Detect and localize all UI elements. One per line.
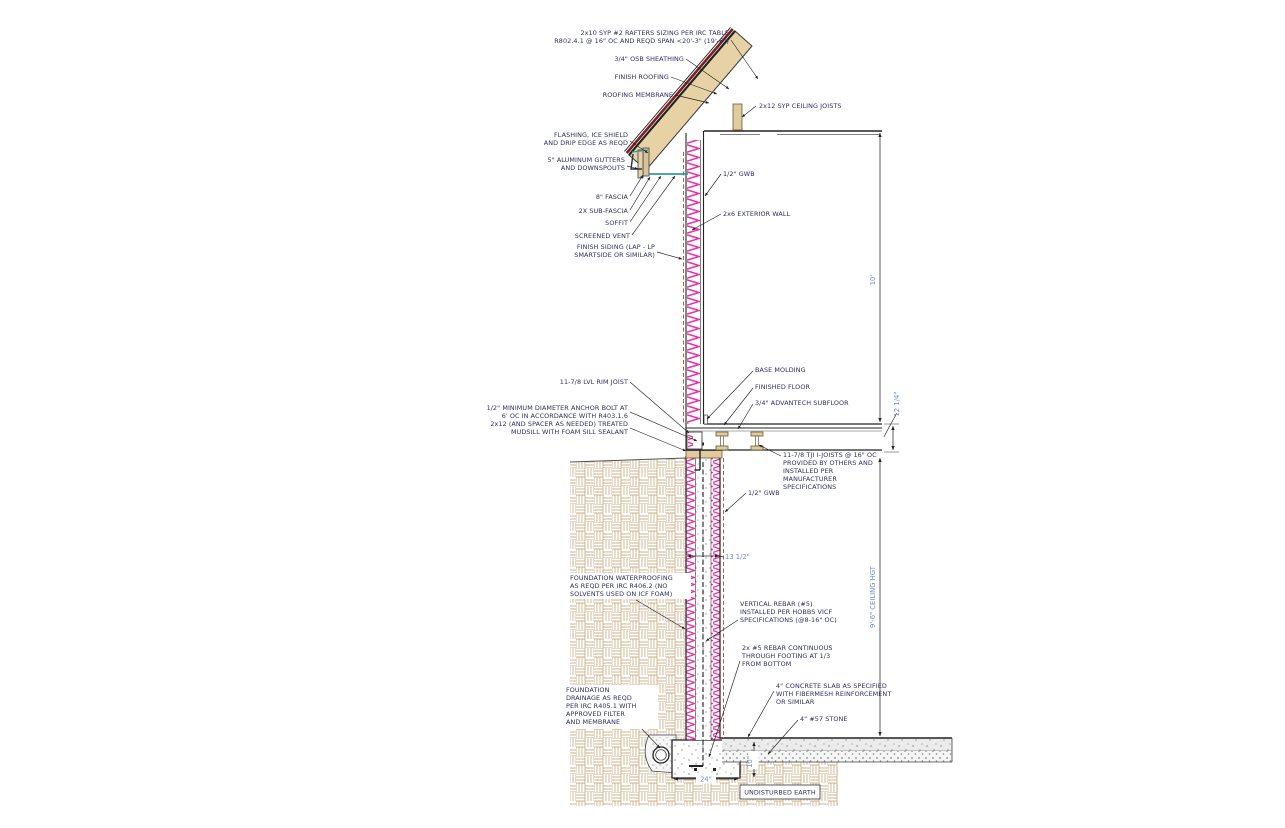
drain-pipe — [653, 747, 669, 763]
tji-joist — [751, 432, 763, 450]
note-membrane: ROOFING MEMBRANE — [603, 91, 673, 99]
note-ceiling-joists: 2x12 SYP CEILING JOISTS — [759, 102, 842, 110]
footing-rebar-bar — [713, 768, 716, 771]
dim-icf-width: 13 1/2" — [725, 553, 750, 561]
icf-foundation-wall — [686, 456, 724, 740]
exterior-wall — [684, 131, 704, 424]
base-molding — [704, 415, 708, 424]
concrete-slab — [720, 738, 952, 751]
note-vertical-rebar: VERTICAL REBAR (#5)INSTALLED PER HOBBS V… — [740, 600, 837, 624]
note-footing-rebar: 2x #5 REBAR CONTINUOUSTHROUGH FOOTING AT… — [741, 644, 833, 668]
dim-ceiling-height: 9'-6" CEILING HGT — [869, 565, 877, 628]
note-gwb-upper: 1/2" GWB — [723, 170, 755, 178]
note-base-molding: BASE MOLDING — [755, 366, 806, 374]
note-waterproofing: FOUNDATION WATERPROOFINGAS REQD PER IRC … — [570, 574, 673, 598]
note-soffit: SOFFIT — [605, 219, 628, 227]
note-sheathing: 3/4" OSB SHEATHING — [614, 55, 684, 63]
footing-rebar-bar — [694, 768, 697, 771]
note-vent: SCREENED VENT — [575, 232, 630, 240]
note-rafters: 2x10 SYP #2 RAFTERS SIZING PER IRC TABLE… — [554, 29, 729, 45]
dim-floor-depth: 12 1/4" — [893, 392, 901, 417]
dim-wall-height: 10' — [869, 275, 877, 286]
note-earth: UNDISTURBED EARTH — [744, 789, 816, 797]
note-fascia: 8" FASCIA — [596, 193, 629, 201]
note-rim-joist: 11-7/8 LVL RIM JOIST — [560, 378, 628, 386]
floor-assembly — [686, 415, 882, 450]
note-stone: 4" #57 STONE — [800, 715, 848, 723]
sub-fascia — [643, 148, 649, 176]
note-slab: 4" CONCRETE SLAB AS SPECIFIEDWITH FIBERM… — [776, 682, 891, 706]
tji-joist — [716, 432, 728, 450]
dim-footing-width: 24" — [700, 776, 712, 784]
note-finished-floor: FINISHED FLOOR — [755, 383, 810, 391]
wall-section-detail: 10' 9'-6" CEILING HGT 12 1/4" 13 1/2" 24… — [0, 0, 1285, 828]
dim-footing-depth: 10" — [746, 756, 754, 768]
note-siding: FINISH SIDING (LAP - LPSMARTSIDE OR SIMI… — [574, 243, 655, 259]
note-subfloor: 3/4" ADVANTECH SUBFLOOR — [755, 399, 849, 407]
note-finish-roofing: FINISH ROOFING — [615, 73, 669, 81]
drawing-sheet: 10' 9'-6" CEILING HGT 12 1/4" 13 1/2" 24… — [0, 0, 1285, 828]
icf-foam-inner — [711, 458, 720, 740]
note-tji: 11-7/8 TJI I-JOISTS @ 16" OCPROVIDED BY … — [783, 451, 877, 491]
batt-insulation — [687, 140, 700, 424]
fascia — [638, 150, 643, 178]
note-anchor-bolt: 1/2" MINIMUM DIAMETER ANCHOR BOLT AT6' O… — [487, 404, 628, 436]
note-subfascia: 2X SUB-FASCIA — [579, 207, 629, 215]
note-gutters: 5" ALUMINUM GUTTERSAND DOWNSPOUTS — [548, 156, 626, 172]
note-gwb-lower: 1/2" GWB — [748, 489, 780, 497]
undisturbed-earth-box: UNDISTURBED EARTH — [740, 785, 820, 799]
note-flashing: FLASHING, ICE SHIELDAND DRIP EDGE AS REQ… — [544, 131, 628, 147]
ceiling-joist — [733, 104, 742, 130]
note-ext-wall: 2x6 EXTERIOR WALL — [723, 210, 791, 218]
